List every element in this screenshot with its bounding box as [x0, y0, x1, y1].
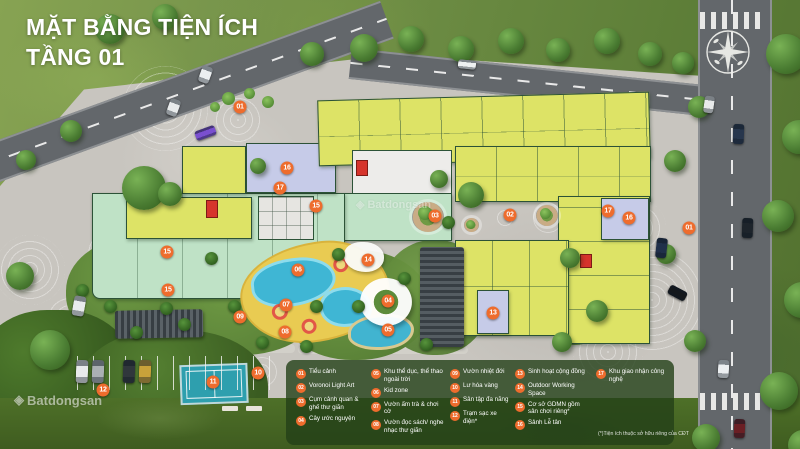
tree-icon: [546, 38, 570, 62]
legend-label: Vườn đọc sách/ nghe nhạc thư giãn: [384, 419, 445, 435]
palm-tree-icon: [256, 336, 269, 349]
shrub-icon: [222, 92, 235, 105]
legend-item: 12Trạm sạc xe điện*: [450, 410, 510, 426]
plan-marker-13: 13: [487, 307, 500, 320]
palm-tree-icon: [352, 300, 365, 313]
legend-number-badge: 01: [296, 369, 306, 379]
legend-label: Khu giao nhận công nghệ: [609, 368, 666, 384]
building-right-upper: [455, 146, 651, 202]
legend-item: 08Vườn đọc sách/ nghe nhạc thư giãn: [371, 419, 445, 435]
car-icon: [718, 360, 730, 379]
watermark: ◈ Batdongsan: [14, 392, 102, 408]
legend-item: 15Cơ sở GDMN gồm sân chơi riêng*: [515, 401, 591, 417]
palm-tree-icon: [310, 300, 323, 313]
legend-label: Cây ước nguyện: [309, 415, 355, 423]
tree-icon: [766, 34, 800, 74]
car-icon: [139, 360, 152, 383]
tree-icon: [672, 52, 694, 74]
shrub-icon: [540, 208, 551, 219]
tree-icon: [594, 28, 620, 54]
legend-label: Cụm cảnh quan & ghế thư giãn: [309, 396, 366, 412]
watermark-logo-icon: ◈: [14, 392, 24, 408]
plan-marker-14: 14: [362, 254, 375, 267]
legend-label: Sinh hoạt cộng đồng: [528, 368, 585, 376]
plan-marker-17: 17: [274, 182, 287, 195]
car-icon: [92, 360, 105, 383]
legend-number-badge: 15: [515, 402, 525, 412]
car-icon: [734, 419, 746, 438]
legend-panel: 01Tiểu cảnh02Voronoi Light Art03Cụm cảnh…: [286, 360, 674, 445]
legend-label: Cơ sở GDMN gồm sân chơi riêng*: [528, 401, 591, 417]
plan-marker-17: 17: [602, 205, 615, 218]
plan-marker-09: 09: [234, 311, 247, 324]
tree-icon: [586, 300, 608, 322]
legend-label: Tiểu cảnh: [309, 368, 336, 376]
title-line-2: TẦNG 01: [26, 42, 258, 72]
legend-number-badge: 13: [515, 369, 525, 379]
legend-number-badge: 12: [450, 411, 460, 421]
utility-rooms: [258, 196, 314, 240]
legend-item: 13Sinh hoạt cộng đồng: [515, 368, 591, 379]
legend-item: 02Voronoi Light Art: [296, 382, 366, 393]
tree-icon: [552, 332, 572, 352]
pergola: [420, 247, 464, 347]
plan-marker-03: 03: [429, 210, 442, 223]
legend-item: 06Kid zone: [371, 387, 445, 398]
legend-label: Voronoi Light Art: [309, 382, 354, 390]
tree-icon: [430, 170, 448, 188]
legend-item: 03Cụm cảnh quan & ghế thư giãn: [296, 396, 366, 412]
legend-item: 17Khu giao nhận công nghệ: [596, 368, 666, 384]
tree-icon: [692, 424, 720, 449]
bench: [222, 406, 238, 411]
plan-marker-04: 04: [382, 295, 395, 308]
crosswalk: [700, 393, 766, 410]
tree-icon: [638, 42, 662, 66]
legend-number-badge: 05: [371, 369, 381, 379]
shrub-icon: [466, 220, 475, 229]
plan-marker-02: 02: [504, 209, 517, 222]
watermark-logo-icon: ◈: [356, 198, 364, 211]
shrub-icon: [210, 102, 220, 112]
watermark: ◈ Batdongsan: [356, 198, 431, 211]
plan-marker-01: 01: [234, 101, 247, 114]
crosswalk: [700, 12, 766, 29]
tree-icon: [458, 182, 484, 208]
legend-item: 04Cây ước nguyện: [296, 415, 366, 426]
legend-number-badge: 10: [450, 383, 460, 393]
stair-core: [206, 200, 218, 218]
shrub-icon: [262, 96, 274, 108]
legend-label: Vườn nhiệt đới: [463, 368, 505, 376]
building-yellow-mid: [182, 146, 246, 194]
plan-marker-05: 05: [382, 324, 395, 337]
palm-tree-icon: [442, 216, 455, 229]
palm-tree-icon: [420, 338, 433, 351]
plan-marker-08: 08: [279, 326, 292, 339]
tree-icon: [560, 248, 580, 268]
car-icon: [123, 360, 136, 383]
compass-rose-icon: [704, 28, 752, 76]
tree-icon: [498, 28, 524, 54]
plan-marker-10: 10: [252, 367, 265, 380]
legend-column: 17Khu giao nhận công nghệ(*)Tiện ích thu…: [596, 368, 666, 439]
car-icon: [742, 218, 754, 238]
tree-icon: [250, 158, 266, 174]
tree-icon: [30, 330, 70, 370]
legend-number-badge: 02: [296, 383, 306, 393]
tree-icon: [784, 282, 800, 318]
legend-number-badge: 08: [371, 420, 381, 430]
site-plan-image: 0116171515150302171601061404050709081310…: [0, 0, 800, 449]
plan-marker-11: 11: [207, 376, 220, 389]
legend-number-badge: 14: [515, 383, 525, 393]
tree-icon: [398, 26, 424, 52]
legend-number-badge: 09: [450, 369, 460, 379]
legend-label: Sảnh Lễ tân: [528, 419, 561, 427]
title-line-1: MẶT BẰNG TIỆN ÍCH: [26, 12, 258, 42]
car-icon: [458, 59, 477, 70]
plan-marker-16: 16: [623, 212, 636, 225]
watermark-text: Batdongsan: [27, 393, 102, 408]
legend-label: Lư hóa vàng: [463, 382, 498, 390]
tree-icon: [664, 150, 686, 172]
tree-icon: [300, 42, 324, 66]
legend-number-badge: 07: [371, 402, 381, 412]
legend-column: 13Sinh hoạt cộng đồng14Outdoor Working S…: [515, 368, 591, 439]
palm-tree-icon: [178, 318, 191, 331]
plan-marker-06: 06: [292, 264, 305, 277]
stair-core: [580, 254, 592, 268]
tree-icon: [60, 120, 82, 142]
bench: [246, 406, 262, 411]
legend-label: Khu thể dục, thể thao ngoài trời: [384, 368, 445, 384]
legend-number-badge: 03: [296, 397, 306, 407]
legend-number-badge: 17: [596, 369, 606, 379]
tree-icon: [16, 150, 36, 170]
shrub-icon: [244, 88, 255, 99]
palm-tree-icon: [300, 340, 313, 353]
car-icon: [655, 237, 668, 258]
legend-label: Kid zone: [384, 387, 408, 395]
plan-marker-16: 16: [281, 162, 294, 175]
building-bottom-right: [455, 240, 569, 336]
legend-label: Vườn ấm trà & chơi cờ: [384, 401, 445, 417]
palm-tree-icon: [332, 248, 345, 261]
legend-item: 05Khu thể dục, thể thao ngoài trời: [371, 368, 445, 384]
legend-item: 07Vườn ấm trà & chơi cờ: [371, 401, 445, 417]
car-icon: [733, 124, 745, 144]
legend-number-badge: 04: [296, 416, 306, 426]
plan-marker-15: 15: [161, 246, 174, 259]
plan-marker-07: 07: [280, 299, 293, 312]
tree-icon: [448, 36, 474, 62]
tree-icon: [6, 262, 34, 290]
palm-tree-icon: [160, 302, 173, 315]
plan-marker-15: 15: [310, 200, 323, 213]
legend-label: Sân tập đa năng: [463, 396, 508, 404]
legend-label: Trạm sạc xe điện*: [463, 410, 510, 426]
legend-column: 09Vườn nhiệt đới10Lư hóa vàng11Sân tập đ…: [450, 368, 510, 439]
legend-item: 16Sảnh Lễ tân: [515, 419, 591, 430]
plan-marker-15: 15: [162, 284, 175, 297]
tree-icon: [684, 330, 706, 352]
palm-tree-icon: [398, 272, 411, 285]
palm-tree-icon: [205, 252, 218, 265]
tree-icon: [350, 34, 378, 62]
tree-icon: [158, 182, 182, 206]
plan-marker-01: 01: [683, 222, 696, 235]
palm-tree-icon: [130, 326, 143, 339]
legend-label: Outdoor Working Space: [528, 382, 591, 398]
palm-tree-icon: [104, 300, 117, 313]
car-icon: [76, 360, 89, 383]
watermark-text: Batdongsan: [367, 199, 431, 211]
legend-column: 05Khu thể dục, thể thao ngoài trời06Kid …: [371, 368, 445, 439]
legend-column: 01Tiểu cảnh02Voronoi Light Art03Cụm cảnh…: [296, 368, 366, 439]
page-title: MẶT BẰNG TIỆN ÍCH TẦNG 01: [26, 12, 258, 72]
legend-number-badge: 11: [450, 397, 460, 407]
legend-item: 01Tiểu cảnh: [296, 368, 366, 379]
legend-item: 11Sân tập đa năng: [450, 396, 510, 407]
legend-item: 10Lư hóa vàng: [450, 382, 510, 393]
tree-icon: [762, 200, 794, 232]
tree-icon: [782, 120, 800, 154]
legend-number-badge: 16: [515, 420, 525, 430]
legend-footnote: (*)Tiện ích thuộc sở hữu riêng của CĐT: [598, 431, 689, 437]
stair-core: [356, 160, 368, 176]
legend-number-badge: 06: [371, 388, 381, 398]
legend-item: 14Outdoor Working Space: [515, 382, 591, 398]
legend-item: 09Vườn nhiệt đới: [450, 368, 510, 379]
tree-icon: [760, 372, 798, 410]
